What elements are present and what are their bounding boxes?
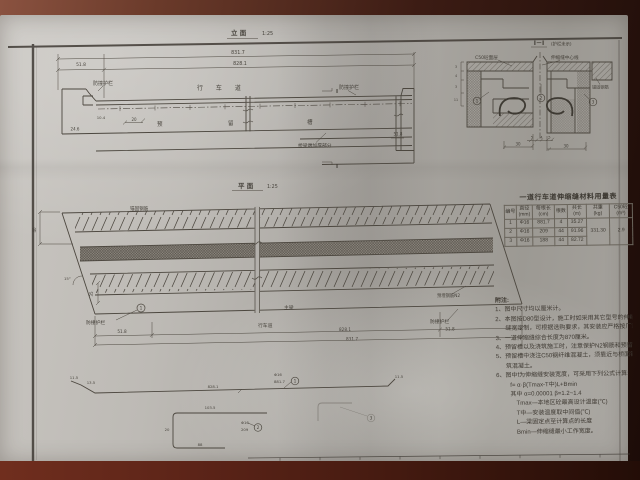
plan-dim-inner: 828.1 — [339, 327, 351, 332]
plan-callout-number: 1 — [140, 306, 143, 312]
elevation-scale: 1:25 — [262, 31, 273, 37]
elevation-groove-char-2: 留 — [228, 119, 234, 127]
section-dim-30-right: 30 — [563, 144, 569, 149]
plan-angle-label: 15° — [64, 276, 71, 281]
section-stipple-right-col — [577, 71, 590, 133]
rebar-bar1-dim-d2: 13.5 — [87, 380, 96, 385]
elevation-label-thickened: 桥梁端加厚部分 — [298, 142, 332, 149]
material-quantity-table: 一道行车道伸缩缝材料用量表 编号 直径(mm) 每根长(cm) 根数 共长(m)… — [504, 191, 634, 247]
elevation-dim-inner: 828.1 — [233, 61, 247, 67]
elevation-dim-h-left: 24.6 — [71, 127, 80, 132]
section-dim-col-4: 11 — [454, 98, 458, 102]
section-callout-3: 3 — [592, 100, 595, 106]
section-label-surface: C50砼面层 — [475, 54, 498, 61]
plan-label-barrier-left: 防撞护栏 — [86, 319, 105, 326]
plan-label-plate: 预埋钢筋N2 — [437, 292, 460, 299]
rebar-bar1-number: 1 — [294, 379, 297, 385]
section-hatch-right-top — [547, 62, 590, 71]
section-hatch-outer-right — [592, 62, 612, 80]
elevation-outline — [62, 89, 414, 165]
section-callout-2: 2 — [540, 96, 543, 102]
elevation-title: 立 面 — [231, 28, 247, 37]
rebar-bar2-shape — [173, 413, 267, 448]
section-dim-small-3: 5 — [548, 136, 550, 140]
notes-block: 附注: 1、图中尺寸均以厘米计。 2、本图按D80型设计，施工时如采用其它型号的… — [495, 295, 634, 438]
rebar-bar1-dim-mid: 828.1 — [208, 384, 219, 389]
plan-label-roadway: 行车道 — [258, 322, 273, 329]
plan-dim-edge-width: 35 — [89, 291, 94, 297]
plan-label-barrier-right: 防撞护栏 — [430, 318, 449, 325]
rebar-bar2-length: 209 — [241, 427, 249, 432]
section-dim-col-1: 3 — [455, 65, 457, 69]
elevation-groove-char-3: 槽 — [307, 118, 313, 126]
photographed-drawing-sheet: 立 面 1:25 831.7 828.1 51.8 防撞护栏 行 车 道 防撞护… — [0, 0, 640, 480]
elevation-section-mark-bottom: I — [336, 164, 338, 170]
rebar-bar1-shape — [71, 379, 395, 393]
plan-label-anchor-bars: 锚固钢筋 — [130, 205, 149, 212]
plan-anchor-band-bottom — [92, 266, 494, 293]
plan-dim-right: 51.8 — [445, 327, 455, 332]
table-total-weight: 331.30 — [586, 218, 609, 245]
rebar-bar2-number: 2 — [257, 425, 260, 431]
rebar-bar1-dim-d1: 11.5 — [70, 375, 79, 380]
rebar-bar2-dim-left: 20 — [165, 427, 170, 432]
material-table-title: 一道行车道伸缩缝材料用量表 — [504, 191, 633, 203]
section-subtitle: (护栏未示) — [551, 41, 572, 48]
elevation-dim-total: 831.7 — [231, 50, 245, 56]
section-dim-small-1: 5 — [531, 136, 533, 140]
rebar-bar3-number: 3 — [370, 416, 373, 422]
rebar-bar1-dim-d3: 11.5 — [395, 374, 404, 379]
rebar-details: 11.5 13.5 828.1 Φ16 881.7 1 11.5 103.5 2… — [70, 372, 404, 448]
elevation-dim-left: 51.8 — [76, 62, 86, 68]
section-dim-small-2: 4 — [540, 136, 542, 140]
plan-dim-left: 51.8 — [117, 329, 127, 334]
plan-title: 平 面 — [238, 182, 254, 190]
section-label-anchor: 锚固钢筋 — [592, 84, 609, 91]
elevation-groove-char-1: 预 — [157, 120, 163, 128]
elevation-centerline-ticks — [120, 101, 400, 111]
section-callout-1: 1 — [476, 99, 479, 105]
section-dim-30-left: 30 — [515, 142, 521, 147]
elevation-dim-right-small: 51.8 — [394, 132, 403, 137]
plan-label-girder: 主梁 — [284, 304, 294, 311]
elevation-section-mark-top: I — [336, 89, 338, 95]
section-dim-col-3: 3 — [455, 85, 457, 89]
rebar-bar3-shape — [318, 403, 375, 422]
elevation-label-barrier-left: 防撞护栏 — [93, 80, 113, 87]
elevation-label-roadway: 行 车 道 — [197, 84, 246, 92]
rebar-bar1-length: 881.7 — [274, 379, 285, 384]
section-label-centerline: 伸缩缝中心线 — [551, 54, 579, 61]
table-concrete-volume: 2.9 — [609, 218, 632, 245]
rebar-bar2-spec: Φ16 — [241, 420, 249, 425]
elevation-label-barrier-right: 防撞护栏 — [339, 84, 359, 91]
section-dim-col-2: 4 — [455, 74, 457, 78]
elevation-dim-d1: 10.4 — [97, 115, 106, 120]
rebar-bar1-spec: Φ16 — [274, 372, 282, 377]
section-detail: I－I (护栏未示) C50砼面层 伸缩缝中心线 锚固钢筋 1 2 3 3 4 … — [454, 40, 612, 151]
section-hatch-left-top — [467, 62, 533, 71]
plan-view: 平 面 1:25 锚固钢筋 预埋钢筋N2 防撞护栏 防撞护栏 行车道 主梁 1 … — [32, 182, 524, 347]
section-title: I－I — [534, 40, 544, 47]
rebar-bar2-dim-bottom: 88 — [198, 442, 203, 447]
elevation-view: 立 面 1:25 831.7 828.1 51.8 防撞护栏 行 车 道 防撞护… — [56, 28, 416, 170]
plan-dim-band-width: 40 — [32, 227, 37, 233]
rebar-bar2-dim-top: 103.5 — [205, 405, 216, 410]
plan-scale: 1:25 — [267, 184, 278, 190]
elevation-dim-d2: 20 — [131, 117, 137, 122]
plan-dim-total: 831.7 — [346, 337, 358, 342]
plan-joint-band-hatch — [80, 238, 493, 261]
elevation-break-marks — [243, 109, 403, 123]
